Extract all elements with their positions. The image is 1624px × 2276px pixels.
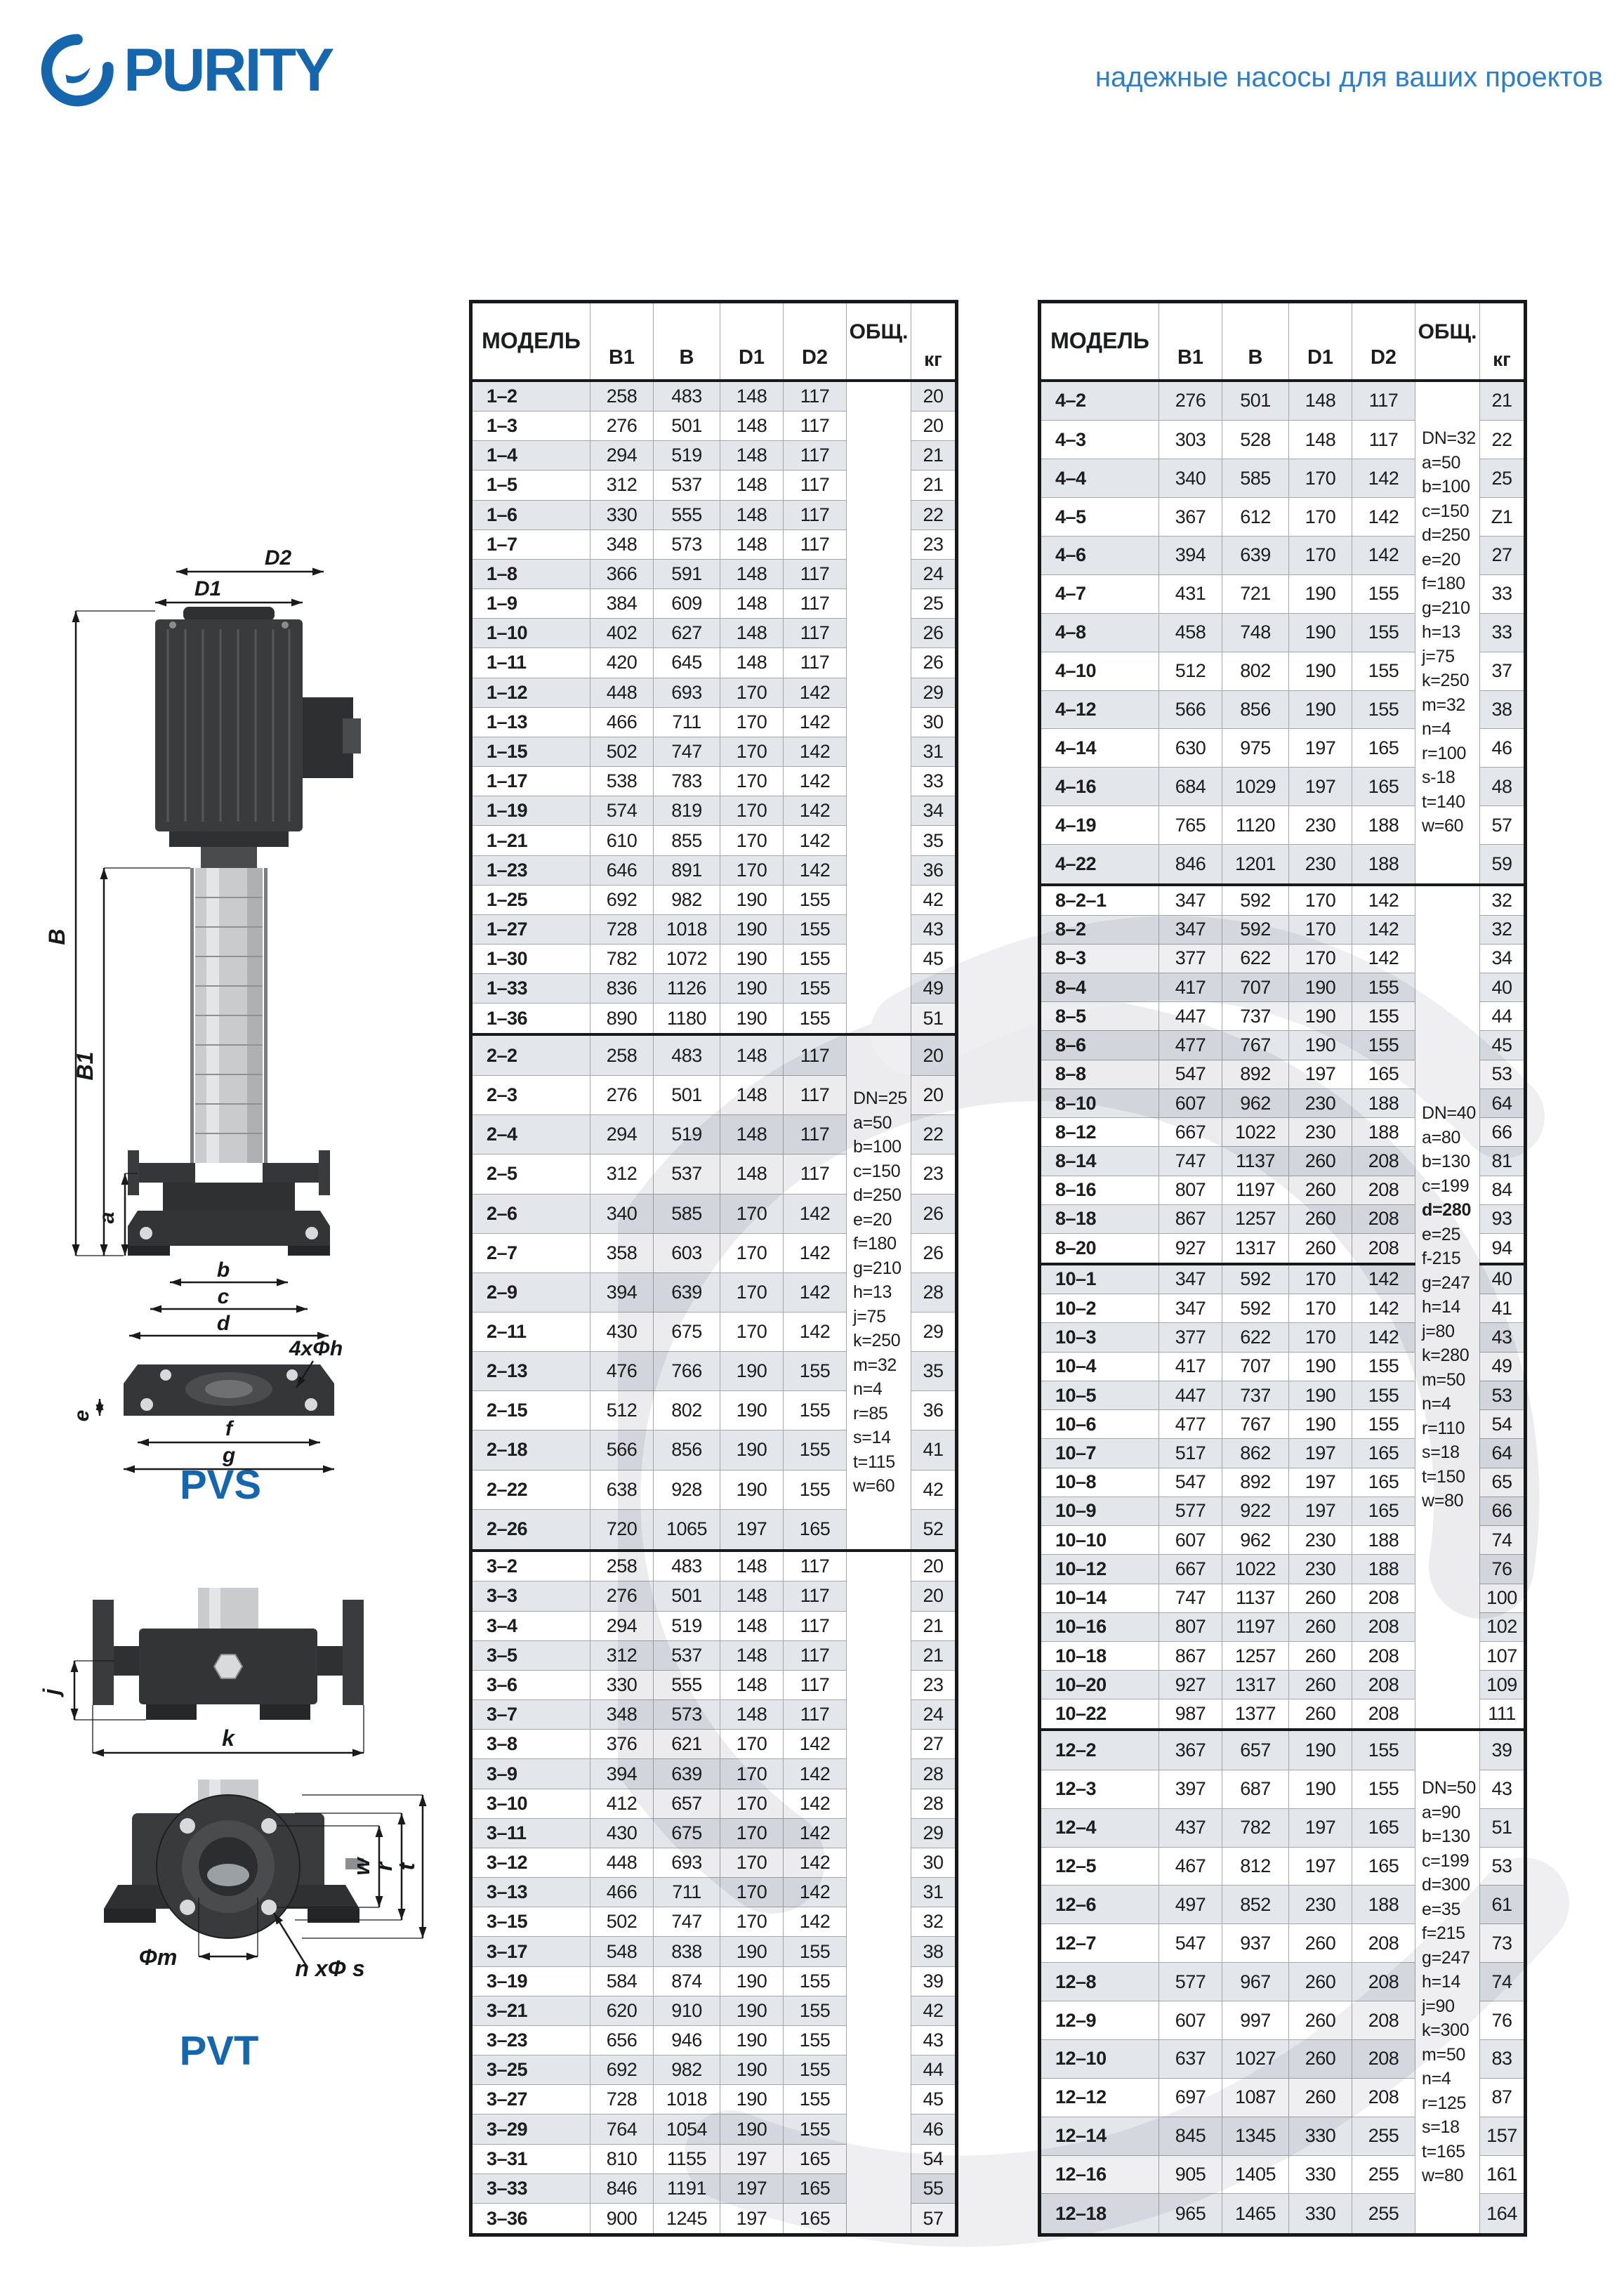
dimension-cell: 170	[720, 1907, 784, 1937]
dimension-cell: 170	[720, 855, 784, 885]
dimension-cell: 747	[654, 1907, 720, 1937]
weight-cell: 64	[1480, 1088, 1526, 1117]
dimension-cell: 148	[720, 441, 784, 471]
dimension-cell: 208	[1352, 1924, 1415, 1963]
dimension-cell: 584	[590, 1966, 654, 1996]
model-cell: 1–19	[471, 796, 590, 826]
weight-cell: 21	[911, 1640, 957, 1670]
dimension-cell: 477	[1159, 1410, 1222, 1439]
dimension-cell: 431	[1159, 574, 1222, 613]
model-cell: 10–5	[1040, 1381, 1159, 1409]
dimension-cell: 260	[1289, 2001, 1352, 2040]
model-cell: 8–2–1	[1040, 885, 1159, 915]
dimension-cell: 684	[1159, 768, 1222, 806]
table-row: 2–2258483148117DN=25a=50b=100c=150d=250e…	[471, 1034, 957, 1076]
dim-label-c: c	[218, 1285, 230, 1308]
dimension-cell: 155	[1352, 1770, 1415, 1808]
notes-line: t=115	[853, 1450, 910, 1475]
dimension-cell: 747	[654, 737, 720, 766]
dimension-cell: 639	[654, 1759, 720, 1789]
dimension-cell: 1137	[1222, 1147, 1289, 1176]
arrowhead	[71, 1709, 79, 1720]
dimension-cell: 802	[1222, 652, 1289, 690]
weight-cell: 25	[1480, 459, 1526, 498]
dimension-cell: 165	[784, 2204, 847, 2235]
notes-line: w=80	[1422, 1489, 1479, 1513]
column-header-2: B	[1222, 302, 1289, 381]
model-cell: 4–10	[1040, 652, 1159, 690]
model-cell: 3–7	[471, 1700, 590, 1730]
weight-cell: 22	[1480, 421, 1526, 459]
dimension-cell: 294	[590, 441, 654, 471]
weight-cell: 164	[1480, 2194, 1526, 2235]
model-cell: 3–17	[471, 1937, 590, 1966]
dimension-cell: 197	[1289, 1439, 1352, 1468]
dimension-cell: 155	[1352, 1410, 1415, 1439]
model-cell: 10–7	[1040, 1439, 1159, 1468]
model-cell: 10–12	[1040, 1555, 1159, 1584]
dimension-cell: 190	[720, 1966, 784, 1996]
dimension-cell: 937	[1222, 1924, 1289, 1963]
dimension-cell: 607	[1159, 1526, 1222, 1555]
arrowhead	[72, 611, 80, 622]
dimension-cell: 170	[1289, 1323, 1352, 1352]
dimension-cell: 260	[1289, 1671, 1352, 1699]
dimension-cell: 477	[1159, 1031, 1222, 1060]
dimension-cell: 347	[1159, 1294, 1222, 1323]
column-header-2: B	[654, 302, 720, 381]
notes-line: h=14	[1422, 1970, 1479, 1994]
dimension-cell: 782	[590, 945, 654, 974]
dimension-cell: 646	[590, 855, 654, 885]
weight-cell: 31	[911, 1878, 957, 1907]
dimension-cell: 208	[1352, 2001, 1415, 2040]
weight-cell: 76	[1480, 1555, 1526, 1584]
dimension-cell: 693	[654, 678, 720, 707]
model-cell: 1–25	[471, 885, 590, 914]
model-cell: 1–4	[471, 441, 590, 471]
dimension-cell: 997	[1222, 2001, 1289, 2040]
dimension-cell: 276	[590, 412, 654, 441]
dimension-cell: 782	[1222, 1808, 1289, 1847]
weight-cell: 65	[1480, 1468, 1526, 1496]
arrowhead	[121, 1244, 129, 1256]
dimension-cell: 190	[720, 914, 784, 944]
arrowhead	[150, 1305, 161, 1313]
weight-cell: 43	[911, 914, 957, 944]
column-header-6: кг	[1480, 302, 1526, 381]
dim-label-a: a	[95, 1212, 119, 1224]
dimension-cell: 230	[1289, 1886, 1352, 1924]
dimension-cell: 852	[1222, 1886, 1289, 1924]
model-cell: 1–30	[471, 945, 590, 974]
notes-line: DN=40	[1422, 1101, 1479, 1126]
weight-cell: 20	[911, 1581, 957, 1611]
dimension-cell: 142	[784, 855, 847, 885]
weight-cell: 57	[911, 2204, 957, 2235]
dimension-cell: 155	[1352, 1031, 1415, 1060]
weight-cell: 51	[1480, 1808, 1526, 1847]
dimension-cell: 208	[1352, 1147, 1415, 1176]
model-cell: 12–5	[1040, 1847, 1159, 1886]
weight-cell: 49	[911, 974, 957, 1004]
weight-cell: 27	[911, 1730, 957, 1759]
dimension-cell: 384	[590, 589, 654, 619]
dimension-cell: 117	[784, 1581, 847, 1611]
weight-cell: 41	[1480, 1294, 1526, 1323]
dimension-cell: 165	[784, 2144, 847, 2173]
dimension-cell: 142	[1352, 498, 1415, 537]
weight-cell: 49	[1480, 1352, 1526, 1381]
dimension-cell: 707	[1222, 1352, 1289, 1381]
notes-line: w=60	[853, 1474, 910, 1499]
dimension-cell: 197	[720, 2204, 784, 2235]
dimension-cell: 1065	[654, 1509, 720, 1551]
model-cell: 1–9	[471, 589, 590, 619]
dimension-cell: 170	[720, 1848, 784, 1877]
dimension-cell: 188	[1352, 1526, 1415, 1555]
weight-cell: 34	[911, 796, 957, 826]
notes-line: d=280	[1422, 1198, 1479, 1223]
brand-logo: PURITY	[41, 34, 332, 107]
dimension-cell: 155	[784, 1996, 847, 2025]
weight-cell: 51	[911, 1004, 957, 1034]
model-cell: 2–5	[471, 1155, 590, 1194]
dimension-cell: 148	[720, 381, 784, 412]
dimension-cell: 766	[654, 1352, 720, 1391]
dimension-cell: 142	[784, 1818, 847, 1848]
dimension-cell: 117	[784, 619, 847, 648]
model-cell: 12–7	[1040, 1924, 1159, 1963]
dimension-cell: 148	[720, 1115, 784, 1155]
notes-line: h=14	[1422, 1295, 1479, 1320]
notes-line: k=250	[1422, 669, 1479, 693]
table-row: 4–2276501148117DN=32a=50b=100c=150d=250e…	[1040, 381, 1526, 421]
dimension-cell: 276	[1159, 381, 1222, 421]
dimension-cell: 1027	[1222, 2039, 1289, 2078]
dimension-cell: 330	[590, 1670, 654, 1699]
dimension-cell: 155	[784, 2055, 847, 2085]
dimension-cell: 555	[654, 1670, 720, 1699]
dimension-cell: 592	[1222, 1264, 1289, 1294]
table-row: 1–225848314811720	[471, 381, 957, 412]
dimension-cell: 165	[1352, 1496, 1415, 1525]
model-cell: 1–23	[471, 855, 590, 885]
dimension-cell: 447	[1159, 1002, 1222, 1031]
notes-line: b=100	[1422, 475, 1479, 499]
weight-cell: 40	[1480, 973, 1526, 1002]
dimension-cell: 737	[1222, 1002, 1289, 1031]
arrowhead	[419, 1927, 427, 1938]
dimension-cell: 165	[1352, 1439, 1415, 1468]
weight-cell: 26	[911, 619, 957, 648]
dimension-cell: 728	[590, 2085, 654, 2114]
table-row: 8–2–1347592170142DN=40a=80b=130c=199d=28…	[1040, 885, 1526, 915]
dimension-cell: 155	[1352, 973, 1415, 1002]
dimension-cell: 148	[720, 559, 784, 588]
dimension-cell: 348	[590, 1700, 654, 1730]
dimension-cell: 170	[720, 1759, 784, 1789]
weight-cell: 42	[911, 885, 957, 914]
dimension-cell: 675	[654, 1818, 720, 1848]
notes-line: c=150	[1422, 499, 1479, 524]
model-cell: 4–4	[1040, 459, 1159, 498]
model-cell: 10–8	[1040, 1468, 1159, 1496]
dimension-cell: 197	[1289, 1496, 1352, 1525]
weight-cell: 42	[911, 1470, 957, 1509]
dimension-cell: 856	[654, 1430, 720, 1470]
dimension-cell: 155	[784, 2114, 847, 2144]
model-cell: 3–23	[471, 2025, 590, 2055]
dimension-cell: 927	[1159, 1671, 1222, 1699]
weight-cell: 20	[911, 381, 957, 412]
model-cell: 3–19	[471, 1966, 590, 1996]
dimension-cell: 621	[654, 1730, 720, 1759]
dimension-cell: 347	[1159, 915, 1222, 944]
dimension-cell: 555	[654, 500, 720, 529]
dimension-cell: 962	[1222, 1088, 1289, 1117]
dimension-cell: 1018	[654, 914, 720, 944]
table-row: 12–2367657190155DN=50a=90b=130c=199d=300…	[1040, 1730, 1526, 1770]
weight-cell: 48	[1480, 768, 1526, 806]
dimension-cell: 117	[784, 1611, 847, 1640]
dimension-cell: 148	[720, 619, 784, 648]
dimension-cell: 155	[784, 974, 847, 1004]
weight-cell: 66	[1480, 1496, 1526, 1525]
arrowhead	[129, 1332, 140, 1340]
notes-line: k=280	[1422, 1343, 1479, 1368]
notes-line: d=250	[853, 1183, 910, 1208]
dimension-cell: 117	[784, 500, 847, 529]
table-header-row: МОДЕЛЬB1BD1D2ОБЩ.кг	[1040, 302, 1526, 381]
weight-cell: 64	[1480, 1439, 1526, 1468]
dimension-cell: 697	[1159, 2078, 1222, 2117]
model-cell: 10–6	[1040, 1410, 1159, 1439]
dimension-cell: 117	[784, 1551, 847, 1581]
dimension-cell: 155	[784, 914, 847, 944]
dimension-cell: 501	[1222, 381, 1289, 421]
dim-label-d: d	[217, 1312, 230, 1335]
dimension-cell: 538	[590, 767, 654, 796]
dimension-cell: 142	[784, 1789, 847, 1818]
dimension-cell: 148	[720, 500, 784, 529]
arrowhead	[398, 1909, 406, 1920]
weight-cell: 33	[1480, 613, 1526, 652]
dimension-cell: 148	[720, 1581, 784, 1611]
notes-line: DN=50	[1422, 1776, 1479, 1801]
weight-cell: 34	[1480, 944, 1526, 973]
dimension-cell: 1191	[654, 2173, 720, 2203]
dimension-cell: 330	[1289, 2194, 1352, 2235]
notes-line: g=210	[853, 1256, 910, 1281]
weight-cell: 59	[1480, 845, 1526, 885]
dimension-cell: 260	[1289, 1642, 1352, 1671]
model-cell: 10–20	[1040, 1671, 1159, 1699]
notes-line: m=50	[1422, 1368, 1479, 1393]
table-header-row: МОДЕЛЬB1BD1D2ОБЩ.кг	[471, 302, 957, 381]
model-cell: 10–4	[1040, 1352, 1159, 1381]
dimension-cell: 190	[1289, 1410, 1352, 1439]
model-cell: 2–3	[471, 1076, 590, 1115]
dimension-cell: 260	[1289, 1176, 1352, 1204]
dimension-cell: 117	[784, 529, 847, 559]
dimension-cell: 547	[1159, 1468, 1222, 1496]
dimension-cell: 330	[590, 500, 654, 529]
dimension-cell: 620	[590, 1996, 654, 2025]
dimension-cell: 466	[590, 707, 654, 737]
dimension-cell: 197	[1289, 729, 1352, 768]
weight-cell: 36	[911, 1391, 957, 1430]
notes-line: r=125	[1422, 2091, 1479, 2116]
model-cell: 3–36	[471, 2204, 590, 2235]
model-cell: 3–21	[471, 1996, 590, 2025]
dimension-cell: 142	[1352, 536, 1415, 574]
model-cell: 1–5	[471, 471, 590, 500]
dimension-cell: 927	[1159, 1234, 1222, 1264]
weight-cell: 74	[1480, 1963, 1526, 2001]
model-cell: 2–11	[471, 1312, 590, 1351]
dimension-cell: 148	[720, 1076, 784, 1115]
weight-cell: 161	[1480, 2155, 1526, 2194]
dimension-cell: 117	[1352, 421, 1415, 459]
notes-line: s=14	[853, 1426, 910, 1450]
weight-cell: 25	[911, 589, 957, 619]
model-cell: 10–16	[1040, 1612, 1159, 1641]
dimension-cell: 190	[1289, 574, 1352, 613]
weight-cell: 32	[1480, 915, 1526, 944]
model-cell: 3–12	[471, 1848, 590, 1877]
dimension-cell: 417	[1159, 1352, 1222, 1381]
dimension-cell: 170	[1289, 498, 1352, 537]
model-cell: 2–13	[471, 1352, 590, 1391]
dim-label-phi-m: Φm	[139, 1945, 178, 1970]
model-cell: 2–4	[471, 1115, 590, 1155]
dimension-cell: 148	[1289, 381, 1352, 421]
notes-line: m=50	[1422, 2043, 1479, 2067]
arrowhead	[312, 568, 324, 576]
weight-cell: 73	[1480, 1924, 1526, 1963]
dimension-cell: 458	[1159, 613, 1222, 652]
dimension-cell: 767	[1222, 1410, 1289, 1439]
dimension-cell: 657	[1222, 1730, 1289, 1770]
model-cell: 3–27	[471, 2085, 590, 2114]
weight-cell: 22	[911, 500, 957, 529]
dimension-cell: 430	[590, 1818, 654, 1848]
dimension-cell: 728	[590, 914, 654, 944]
column-header-0: МОДЕЛЬ	[1040, 302, 1159, 381]
dimension-cell: 155	[784, 885, 847, 914]
model-cell: 10–18	[1040, 1642, 1159, 1671]
dim-label-r: r	[371, 1861, 397, 1871]
dimension-cell: 190	[1289, 1381, 1352, 1409]
arrowhead	[199, 1953, 210, 1961]
dimension-cell: 255	[1352, 2117, 1415, 2155]
model-cell: 1–6	[471, 500, 590, 529]
notes-line: n=4	[1422, 2067, 1479, 2091]
dimension-cell: 155	[1352, 690, 1415, 729]
dimension-cell: 466	[590, 1878, 654, 1907]
dimension-cell: 170	[720, 796, 784, 826]
dimension-cell: 783	[654, 767, 720, 796]
weight-cell: 28	[911, 1789, 957, 1818]
dimension-cell: 155	[1352, 1002, 1415, 1031]
dimension-cell: 155	[1352, 574, 1415, 613]
notes-line: s-18	[1422, 765, 1479, 790]
dimension-cell: 155	[784, 1391, 847, 1430]
dimension-cell: 155	[1352, 652, 1415, 690]
dimension-cell: 142	[784, 1759, 847, 1789]
model-cell: 3–5	[471, 1640, 590, 1670]
model-cell: 3–15	[471, 1907, 590, 1937]
arrowhead	[93, 1749, 104, 1757]
dimension-cell: 148	[720, 589, 784, 619]
notes-line: g=210	[1422, 596, 1479, 621]
arrowhead	[376, 1826, 383, 1837]
weight-cell: 22	[911, 1115, 957, 1155]
dimension-cell: 208	[1352, 1204, 1415, 1233]
dimension-cell: 448	[590, 678, 654, 707]
model-cell: 4–19	[1040, 806, 1159, 845]
dimension-cell: 905	[1159, 2155, 1222, 2194]
notes-line: w=60	[1422, 814, 1479, 838]
dimension-cell: 117	[784, 1155, 847, 1194]
dimension-cell: 170	[1289, 459, 1352, 498]
notes-line: r=100	[1422, 742, 1479, 766]
model-cell: 2–22	[471, 1470, 590, 1509]
notes-line: j=90	[1422, 1994, 1479, 2019]
notes-line: w=80	[1422, 2164, 1479, 2188]
model-cell: 1–10	[471, 619, 590, 648]
dimension-cell: 1029	[1222, 768, 1289, 806]
dimension-cell: 148	[720, 529, 784, 559]
notes-line: b=100	[853, 1135, 910, 1159]
dimension-cell: 610	[590, 826, 654, 855]
dimension-cell: 585	[1222, 459, 1289, 498]
model-cell: 1–2	[471, 381, 590, 412]
dimension-cell: 255	[1352, 2155, 1415, 2194]
dimension-cell: 190	[720, 2085, 784, 2114]
model-cell: 1–7	[471, 529, 590, 559]
dimension-cell: 975	[1222, 729, 1289, 768]
notes-line: g=247	[1422, 1271, 1479, 1296]
notes-line: n=4	[853, 1377, 910, 1402]
dimension-cell: 188	[1352, 806, 1415, 845]
weight-cell: 44	[1480, 1002, 1526, 1031]
dim-label-w: w	[349, 1856, 374, 1875]
model-cell: 10–2	[1040, 1294, 1159, 1323]
dimension-cell: 197	[1289, 1847, 1352, 1886]
dimension-cell: 430	[590, 1312, 654, 1351]
model-cell: 10–9	[1040, 1496, 1159, 1525]
notes-line: e=20	[1422, 548, 1479, 572]
notes-line: a=90	[1422, 1801, 1479, 1825]
dimension-cell: 692	[590, 885, 654, 914]
pvt-view-label: PVT	[180, 2028, 259, 2074]
dimension-cell: 517	[1159, 1439, 1222, 1468]
weight-cell: 54	[1480, 1410, 1526, 1439]
arrowhead	[296, 1305, 308, 1313]
dimension-cell: 190	[720, 1937, 784, 1966]
catalog-page: PURITY надежные насосы для ваших проекто…	[0, 0, 1624, 2276]
notes-line: c=199	[1422, 1174, 1479, 1199]
dimension-cell: 155	[784, 2025, 847, 2055]
model-cell: 3–29	[471, 2114, 590, 2144]
dimension-cell: 155	[1352, 1352, 1415, 1381]
dimension-cell: 148	[720, 1155, 784, 1194]
dimension-cell: 603	[654, 1233, 720, 1272]
notes-line: g=247	[1422, 1946, 1479, 1971]
dimension-cell: 748	[1222, 613, 1289, 652]
